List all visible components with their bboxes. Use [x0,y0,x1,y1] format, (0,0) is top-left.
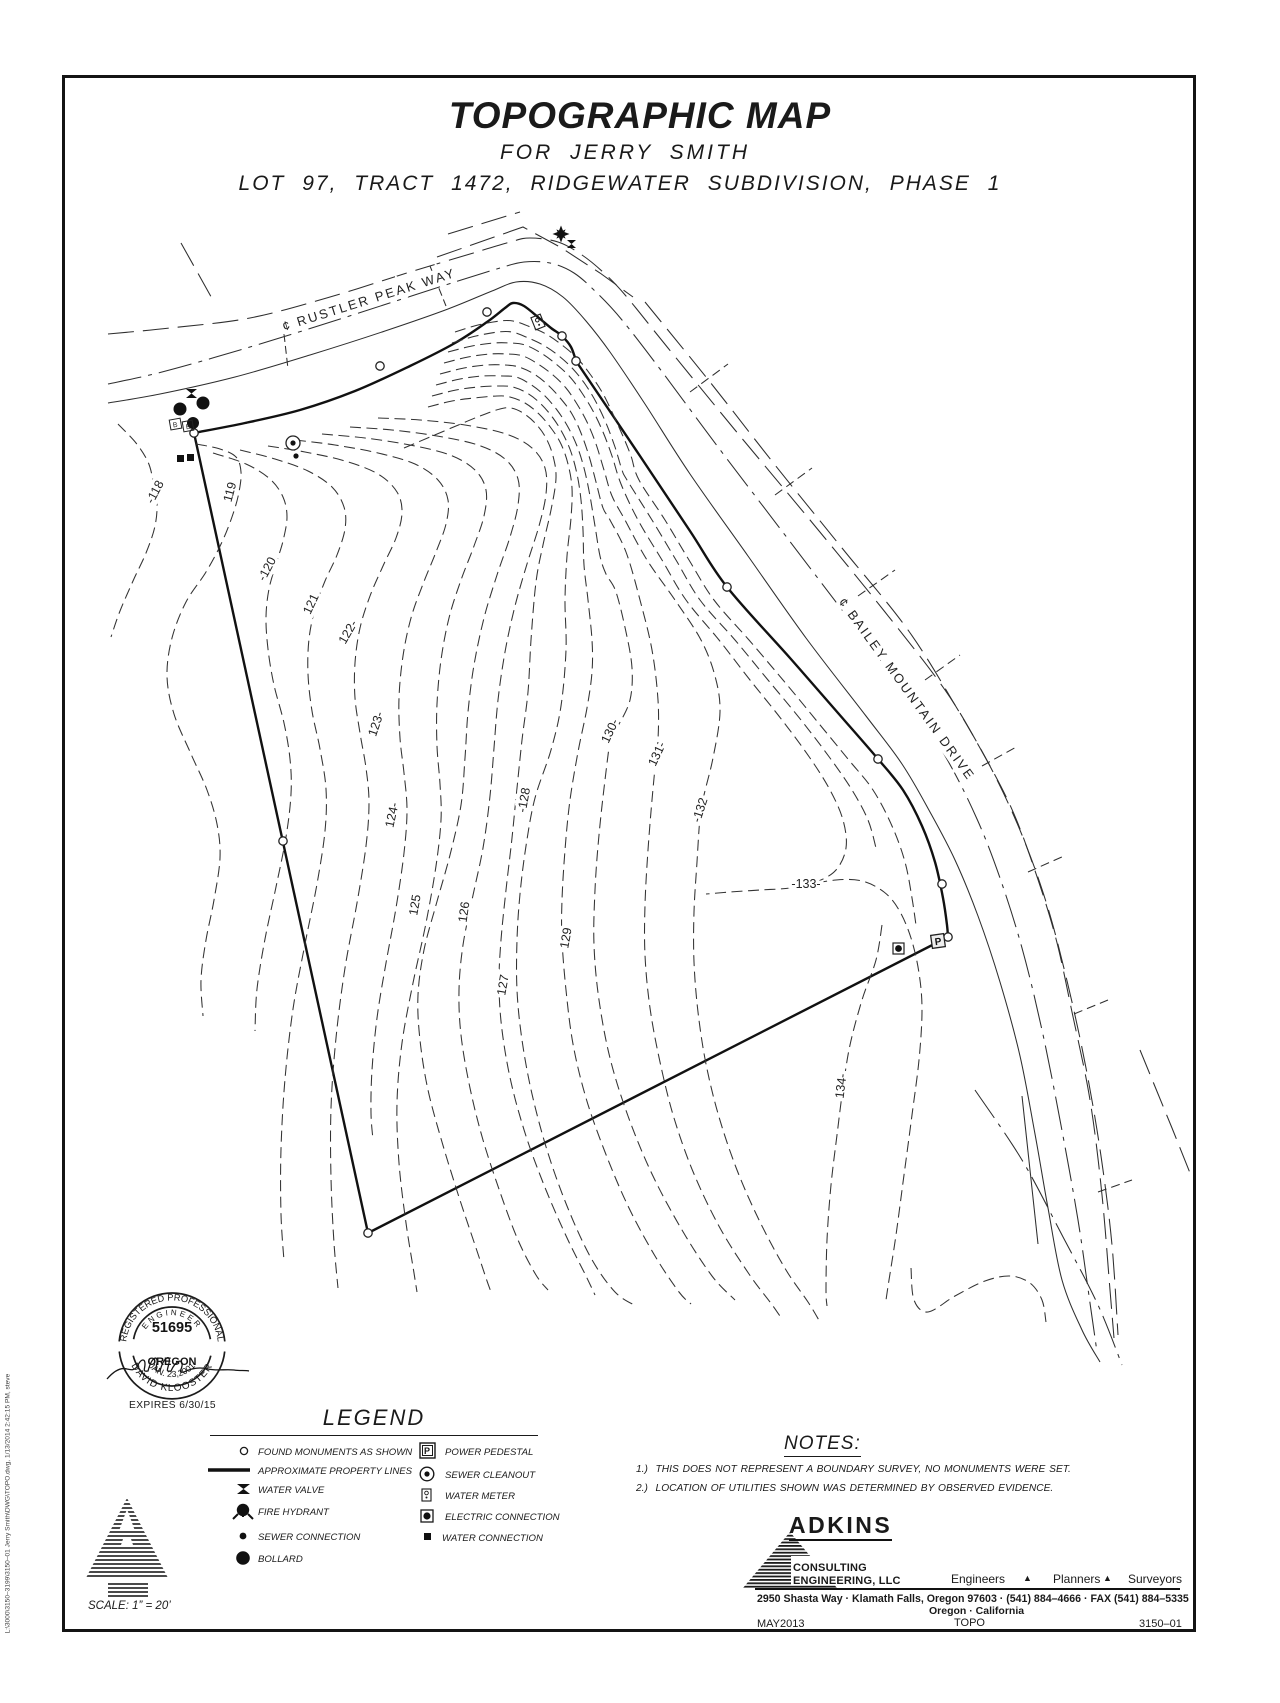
svg-text:SEWER CONNECTION: SEWER CONNECTION [258,1532,360,1543]
svg-text:51695: 51695 [152,1320,192,1336]
svg-text:SEWER CLEANOUT: SEWER CLEANOUT [445,1470,536,1481]
svg-text:-128: -128 [515,786,533,813]
svg-text:ELECTRIC CONNECTION: ELECTRIC CONNECTION [445,1512,560,1523]
svg-text:119: 119 [221,481,240,504]
svg-text:BOLLARD: BOLLARD [258,1554,303,1565]
svg-text:WATER CONNECTION: WATER CONNECTION [442,1533,543,1544]
svg-text:WATER VALVE: WATER VALVE [258,1485,325,1496]
svg-text:APPROXIMATE PROPERTY LINES: APPROXIMATE PROPERTY LINES [257,1466,413,1477]
svg-text:FOUND MONUMENTS AS SHOWN: FOUND MONUMENTS AS SHOWN [258,1447,412,1458]
svg-text:WATER METER: WATER METER [445,1491,515,1502]
svg-text:FIRE HYDRANT: FIRE HYDRANT [258,1507,330,1518]
svg-text:127: 127 [494,973,511,996]
svg-text:121: 121 [300,592,322,617]
svg-text:B: B [172,422,178,430]
svg-text:134-: 134- [833,1073,850,1100]
svg-text:¢ RUSTLER PEAK WAY: ¢ RUSTLER PEAK WAY [280,265,457,334]
svg-text:122-: 122- [336,618,361,647]
svg-text:-132: -132 [689,796,710,824]
svg-text:126: 126 [456,901,473,924]
svg-text:123-: 123- [365,710,386,738]
svg-text:-118: -118 [143,478,167,506]
svg-text:130-: 130- [598,717,621,746]
svg-text:125: 125 [406,893,423,916]
svg-text:124-: 124- [383,801,402,828]
svg-text:-133-: -133- [791,877,820,891]
svg-text:¢ BAILEY MOUNTAIN DRIVE: ¢ BAILEY MOUNTAIN DRIVE [836,595,979,783]
svg-text:POWER PEDESTAL: POWER PEDESTAL [445,1447,533,1458]
svg-text:131-: 131- [645,740,668,769]
svg-text:129: 129 [557,926,574,949]
svg-text:-120: -120 [255,555,279,584]
svg-text:P: P [424,1446,430,1456]
